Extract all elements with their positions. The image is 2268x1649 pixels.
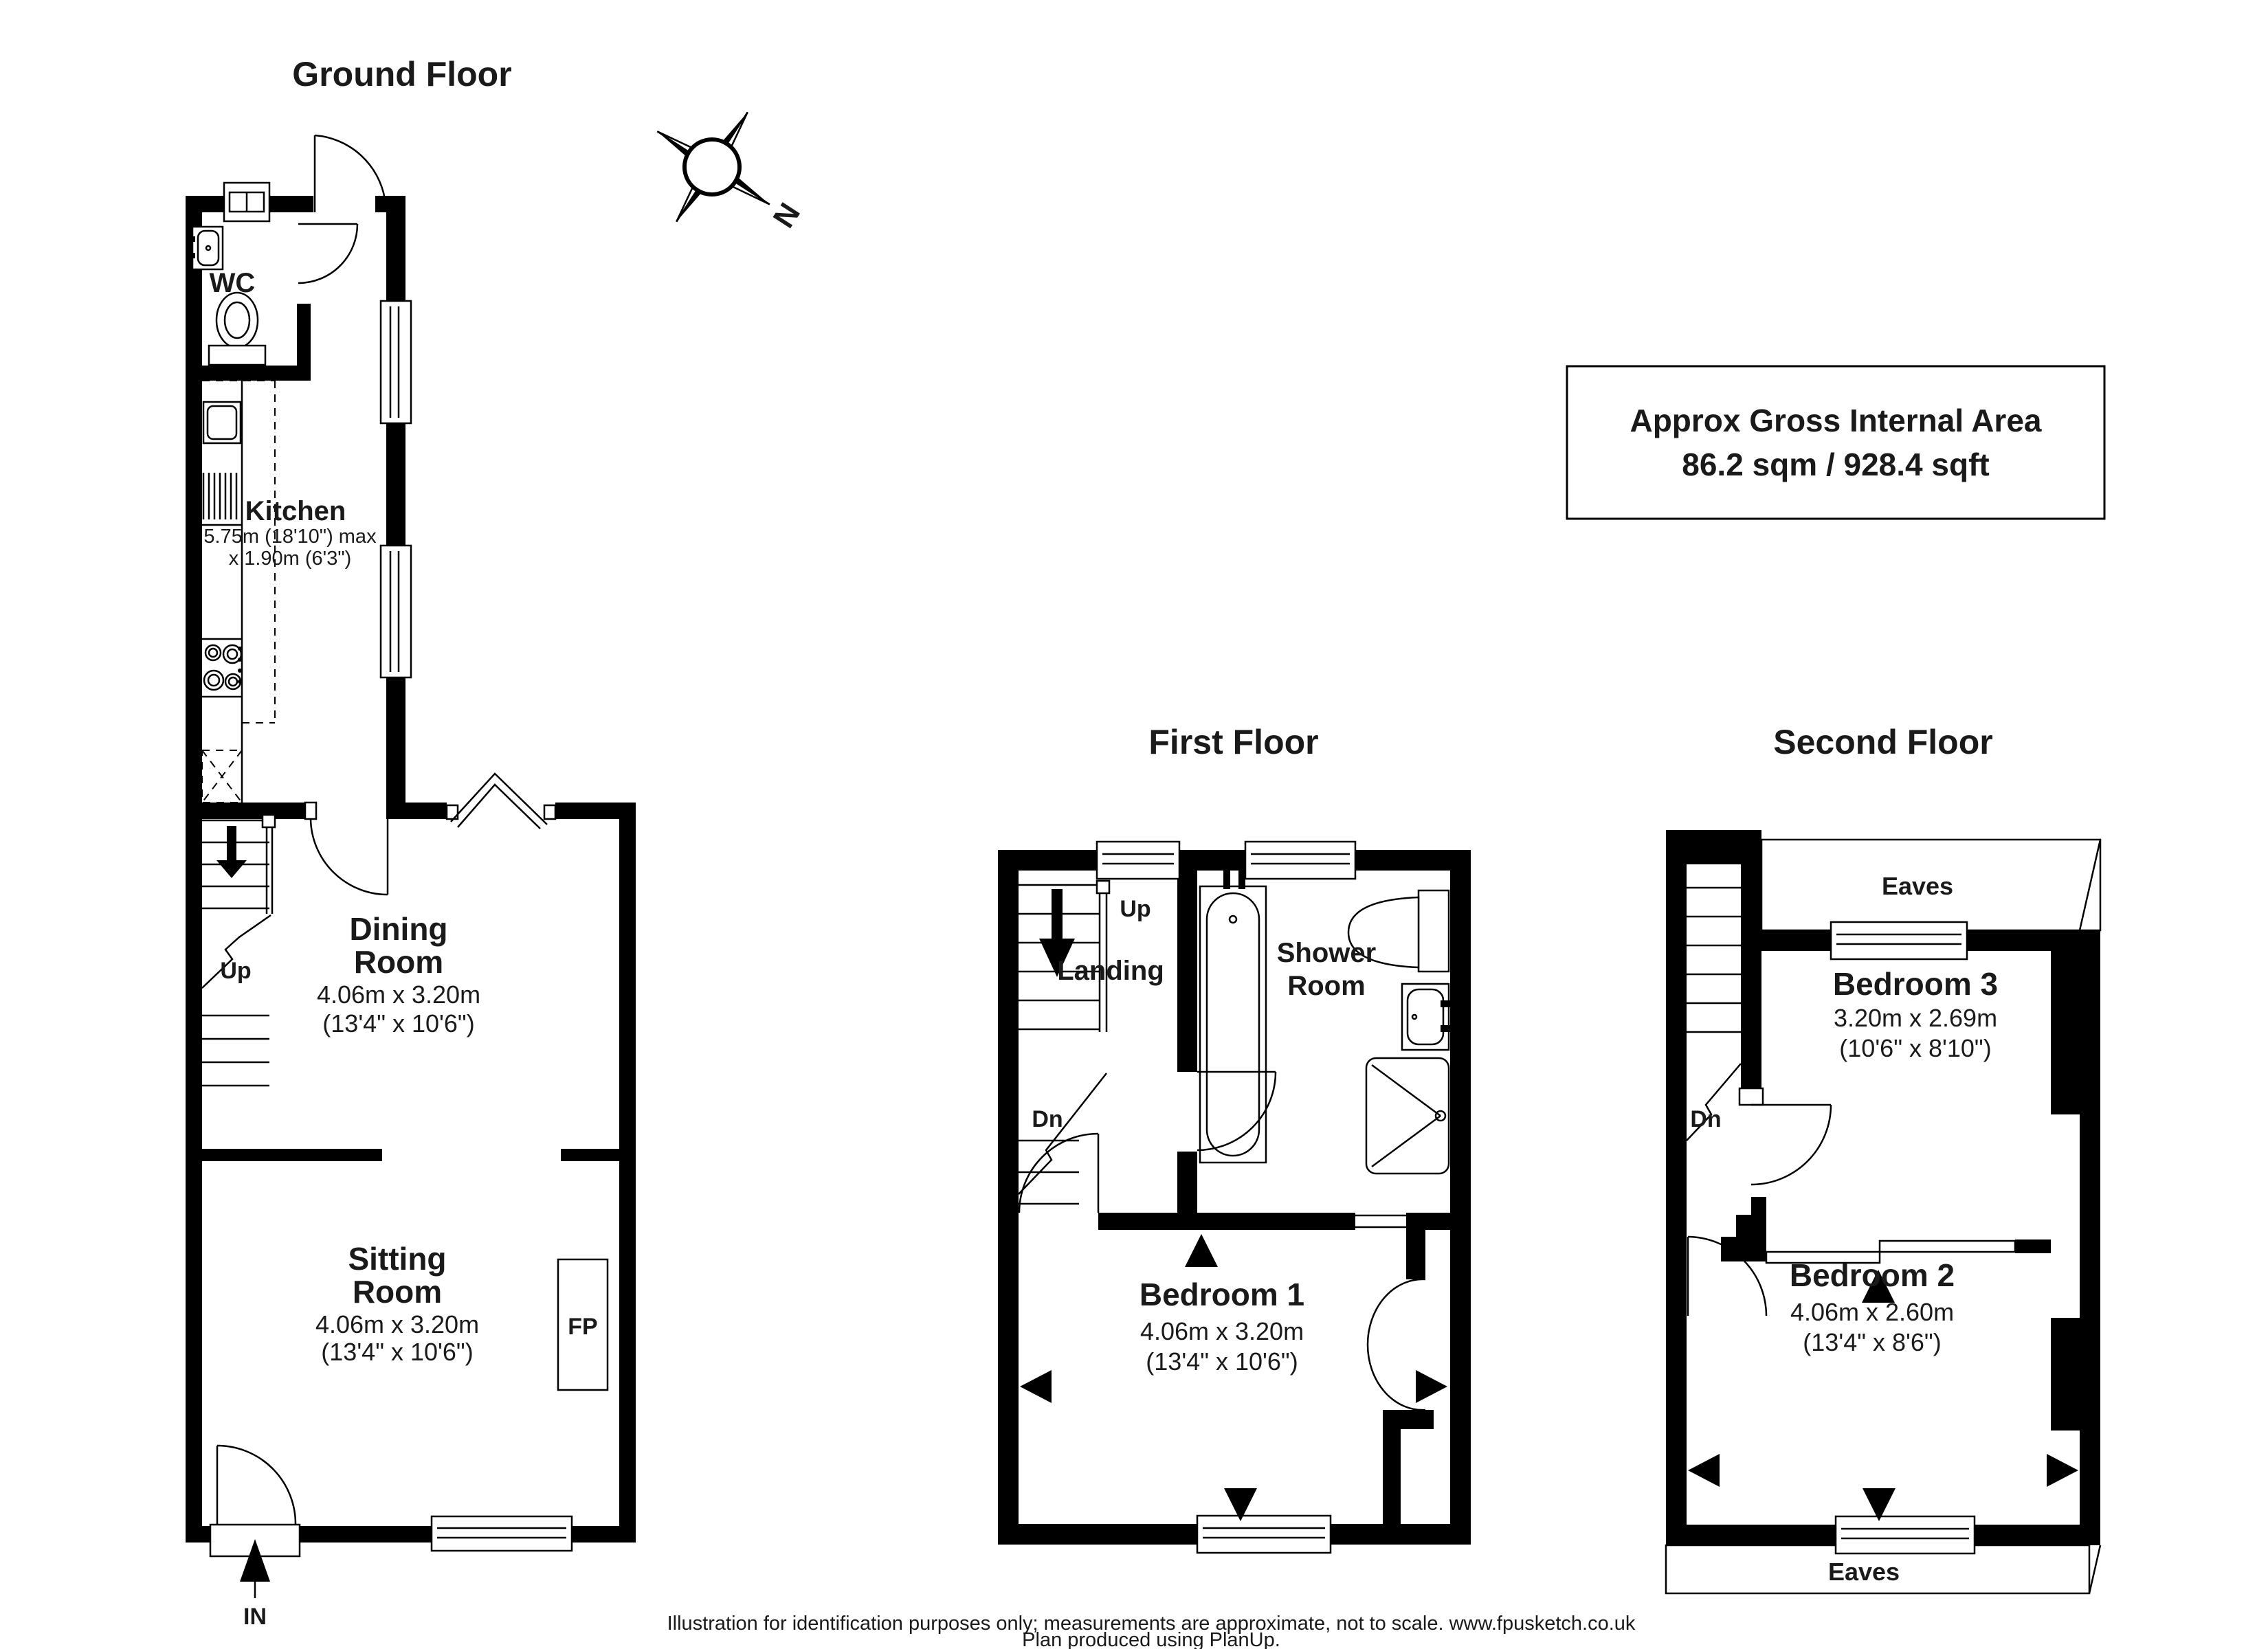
stairs-dn-label-first: Dn (1032, 1106, 1063, 1132)
eaves-bottom-label: Eaves (1828, 1558, 1900, 1586)
room-dim-bedroom3-metric: 3.20m x 2.69m (1834, 1004, 1997, 1032)
room-dim-kitchen-metric2: x 1.90m (6'3") (229, 548, 352, 570)
entry-in-label: IN (243, 1604, 267, 1630)
room-label-dining-1: Dining (349, 911, 447, 947)
footer-credit: Plan produced using PlanUp. (1022, 1629, 1280, 1649)
room-label-shower-1: Shower (1277, 938, 1376, 968)
eaves-top-label: Eaves (1882, 872, 1953, 900)
room-dim-dining-metric: 4.06m x 3.20m (317, 980, 480, 1009)
stairs-down-arrow-head (216, 860, 247, 878)
room-dim-kitchen-metric: 5.75m (18'10") max (203, 526, 377, 548)
room-label-wc: WC (210, 268, 256, 298)
room-dim-bedroom1-metric: 4.06m x 3.20m (1140, 1317, 1304, 1345)
kitchen-appliance-space (202, 750, 242, 803)
room-label-bedroom3: Bedroom 3 (1833, 966, 1998, 1002)
second-floor-plan: Second Floor Eaves Eaves (1666, 723, 2100, 1593)
floorplan-drawing: Ground Floor (0, 0, 2268, 1649)
room-dim-sitting-metric: 4.06m x 3.20m (315, 1310, 479, 1338)
room-label-kitchen: Kitchen (245, 496, 346, 526)
room-dim-bedroom2-metric: 4.06m x 2.60m (1790, 1298, 1954, 1326)
stairs-up-label-first: Up (1120, 896, 1150, 922)
room-dim-bedroom3-imperial: (10'6" x 8'10") (1839, 1034, 1991, 1062)
wc-basin (187, 227, 223, 269)
room-dim-sitting-imperial: (13'4" x 10'6") (321, 1338, 473, 1366)
first-floor-stairs (1019, 881, 1109, 1204)
room-dim-dining-imperial: (13'4" x 10'6") (322, 1009, 474, 1037)
room-dim-bedroom2-imperial: (13'4" x 8'6") (1803, 1328, 1941, 1356)
room-label-landing: Landing (1057, 956, 1164, 986)
room-label-sitting-2: Room (353, 1274, 442, 1310)
kitchen-hob (202, 639, 242, 697)
bay-window (447, 774, 555, 829)
gross-area-box: Approx Gross Internal Area 86.2 sqm / 92… (1567, 366, 2104, 519)
room-label-dining-2: Room (354, 944, 443, 980)
room-label-bedroom2: Bedroom 2 (1790, 1257, 1955, 1293)
room-label-bedroom1: Bedroom 1 (1139, 1277, 1304, 1312)
gross-area-line2: 86.2 sqm / 928.4 sqft (1682, 447, 1989, 482)
fireplace-label: FP (568, 1314, 597, 1340)
room-dim-bedroom1-imperial: (13'4" x 10'6") (1146, 1347, 1298, 1376)
bathtub (1200, 868, 1266, 1163)
stairs-up-label-ground: Up (220, 958, 251, 984)
second-floor-stairs (1687, 888, 1741, 1141)
first-floor-plan: First Floor (998, 723, 1471, 1553)
ground-floor-title: Ground Floor (292, 55, 511, 93)
first-floor-title: First Floor (1148, 723, 1318, 761)
stairs-down-arrow-shaft (227, 826, 236, 860)
stairs-dn-label-second: Dn (1690, 1106, 1721, 1132)
wc-toilet (209, 293, 265, 365)
compass-north-label: N (766, 197, 806, 233)
first-floor-basin (1402, 984, 1452, 1050)
floorplan-page: Ground Floor (0, 0, 2268, 1649)
gross-area-line1: Approx Gross Internal Area (1630, 403, 2041, 438)
ground-floor-stairs (202, 815, 275, 1086)
second-floor-title: Second Floor (1773, 723, 1992, 761)
room-label-sitting-1: Sitting (348, 1241, 446, 1277)
ground-floor-plan: Ground Floor (186, 55, 636, 1630)
shower-cubicle (1366, 1058, 1449, 1174)
compass-icon: N (622, 77, 836, 279)
room-label-shower-2: Room (1287, 971, 1365, 1001)
